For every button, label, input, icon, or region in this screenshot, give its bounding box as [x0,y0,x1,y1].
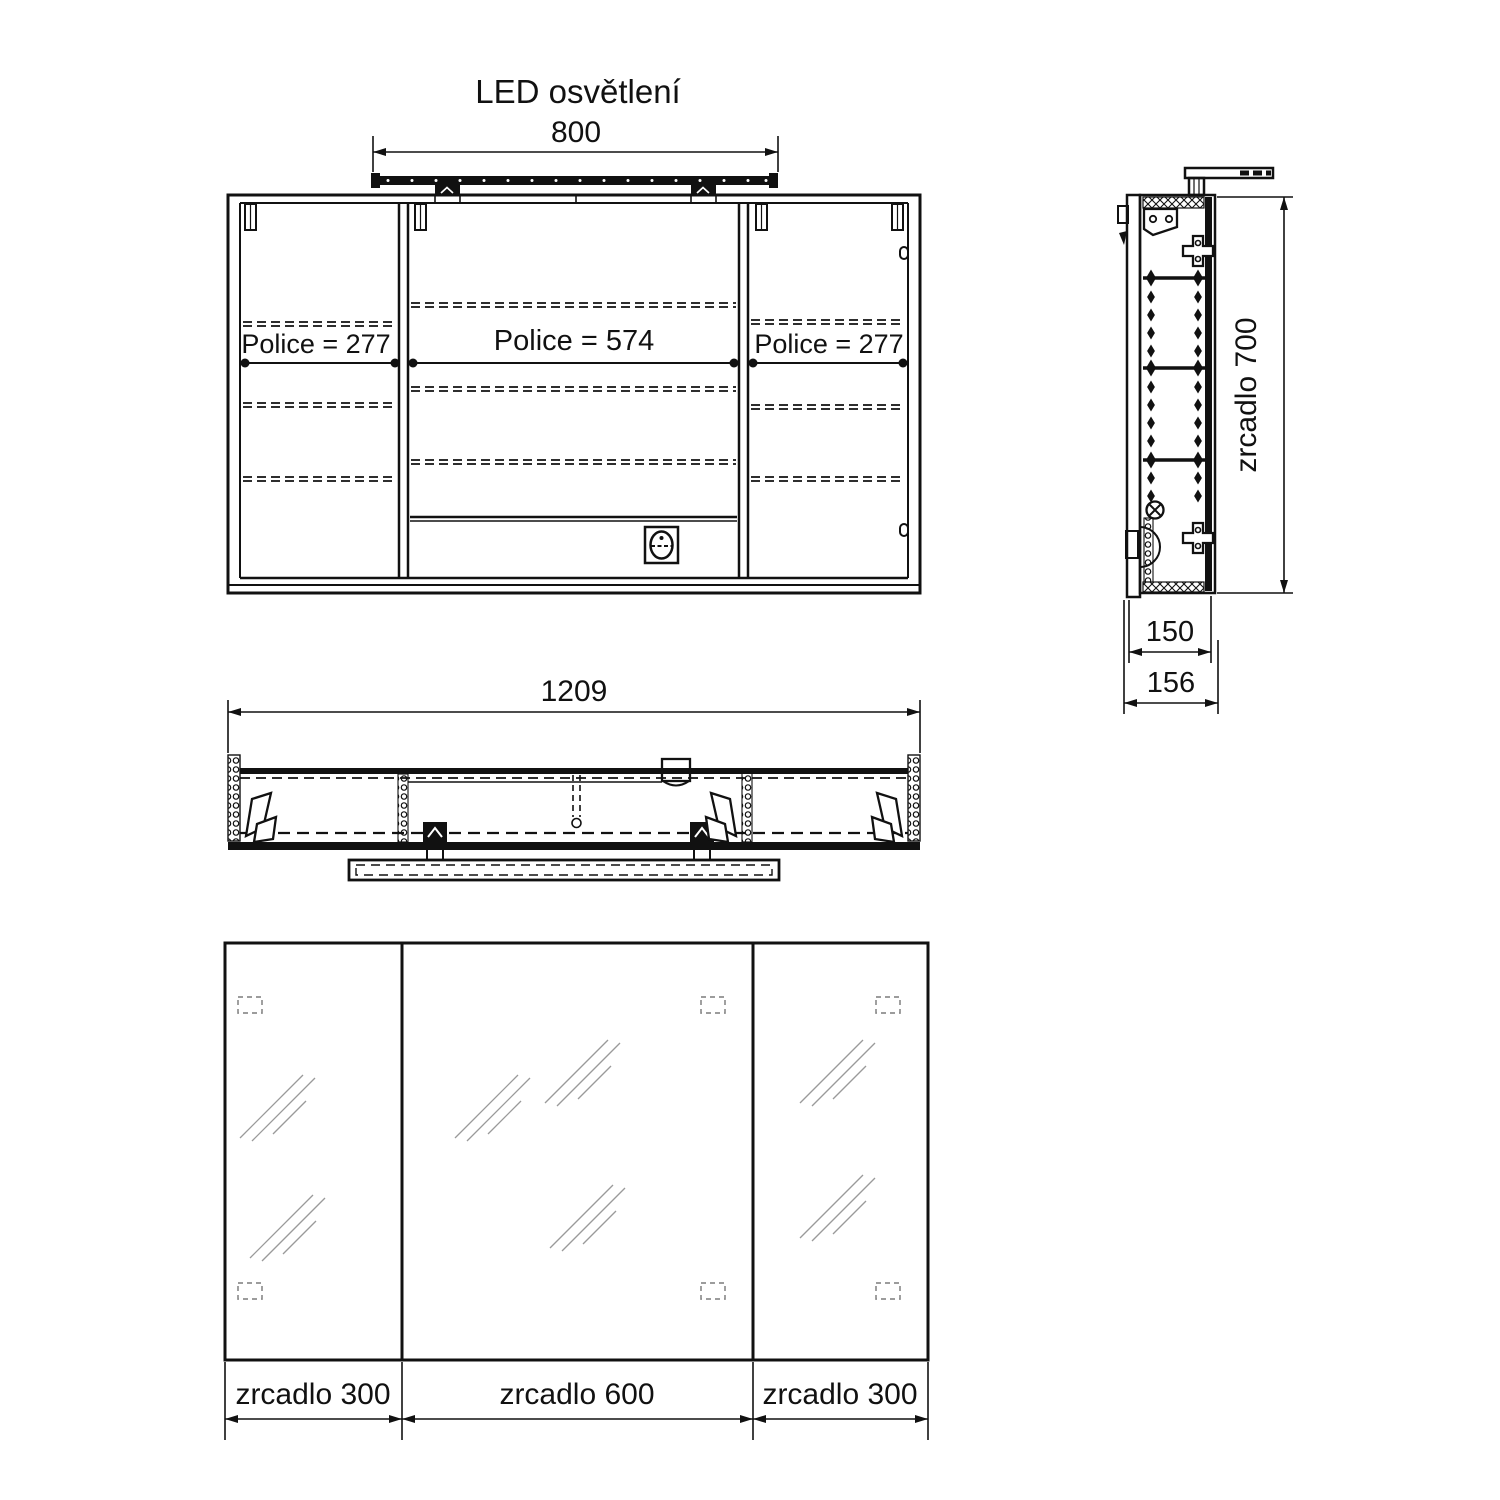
depth-body-dimension: 150 [1129,596,1211,663]
power-socket-icon [645,527,678,563]
led-width-label: 800 [551,116,601,149]
shelf-pin-holes [1147,291,1202,503]
led-bar [371,173,778,203]
technical-drawing-page: LED osvětlení 800 [0,0,1500,1500]
drawing-title: LED osvětlení [475,73,680,110]
mirror-panel-assembly [225,943,928,1360]
plan-divider-right [742,772,752,842]
door-handle-icon [1126,527,1160,567]
led-arm [1185,168,1273,195]
depth-total-label: 156 [1147,667,1195,699]
front-view: LED osvětlení 800 [228,73,920,593]
plan-left-wall [228,755,240,841]
plan-hinge-icon [246,793,902,842]
plan-front-doors [228,842,920,850]
top-panel-hatch [1143,197,1204,208]
side-view: zrcadlo 700 150 156 [1118,168,1293,714]
front-carcass [228,195,920,593]
led-width-dimension: 800 [373,116,778,172]
plan-right-wall [908,755,920,841]
shelf-center-label: Police = 574 [494,325,654,357]
suspension-bracket-icon [245,204,903,230]
mirror-right-label: zrcadlo 300 [762,1378,917,1411]
plan-back-panel [240,768,908,774]
power-cable-icon [572,775,581,828]
plan-led-clip-icon [423,822,714,861]
bottom-panel-hatch [1143,582,1204,592]
shelf-right-label: Police = 277 [754,329,903,359]
depth-body-label: 150 [1146,616,1194,648]
door-catch-icon [900,247,908,536]
mirror-view: zrcadlo 300 zrcadlo 600 zrcadlo 300 [225,943,928,1440]
wall-bracket-icon [1144,209,1177,235]
mirror-width-dimensions: zrcadlo 300 zrcadlo 600 zrcadlo 300 [225,1362,928,1440]
total-width-label: 1209 [541,675,608,708]
plan-divider-left [398,774,408,842]
plan-view: 1209 [228,675,920,880]
shelf-width-dimensions: Police = 277 Police = 574 Police = 277 [241,325,908,368]
mirror-height-label: zrcadlo 700 [1230,317,1263,472]
screw-icon [1147,502,1164,519]
shelf-left-label: Police = 277 [241,329,390,359]
total-width-dimension: 1209 [228,675,920,753]
plan-led-bar [349,860,779,880]
mirror-hinge-plate-icon [238,997,900,1299]
mirror-height-dimension: zrcadlo 700 [1217,197,1293,593]
mirror-center-label: zrcadlo 600 [499,1378,654,1411]
mirror-shine-marks [240,1040,875,1261]
mirror-left-label: zrcadlo 300 [235,1378,390,1411]
cabinet-technical-drawing: LED osvětlení 800 [0,0,1500,1500]
